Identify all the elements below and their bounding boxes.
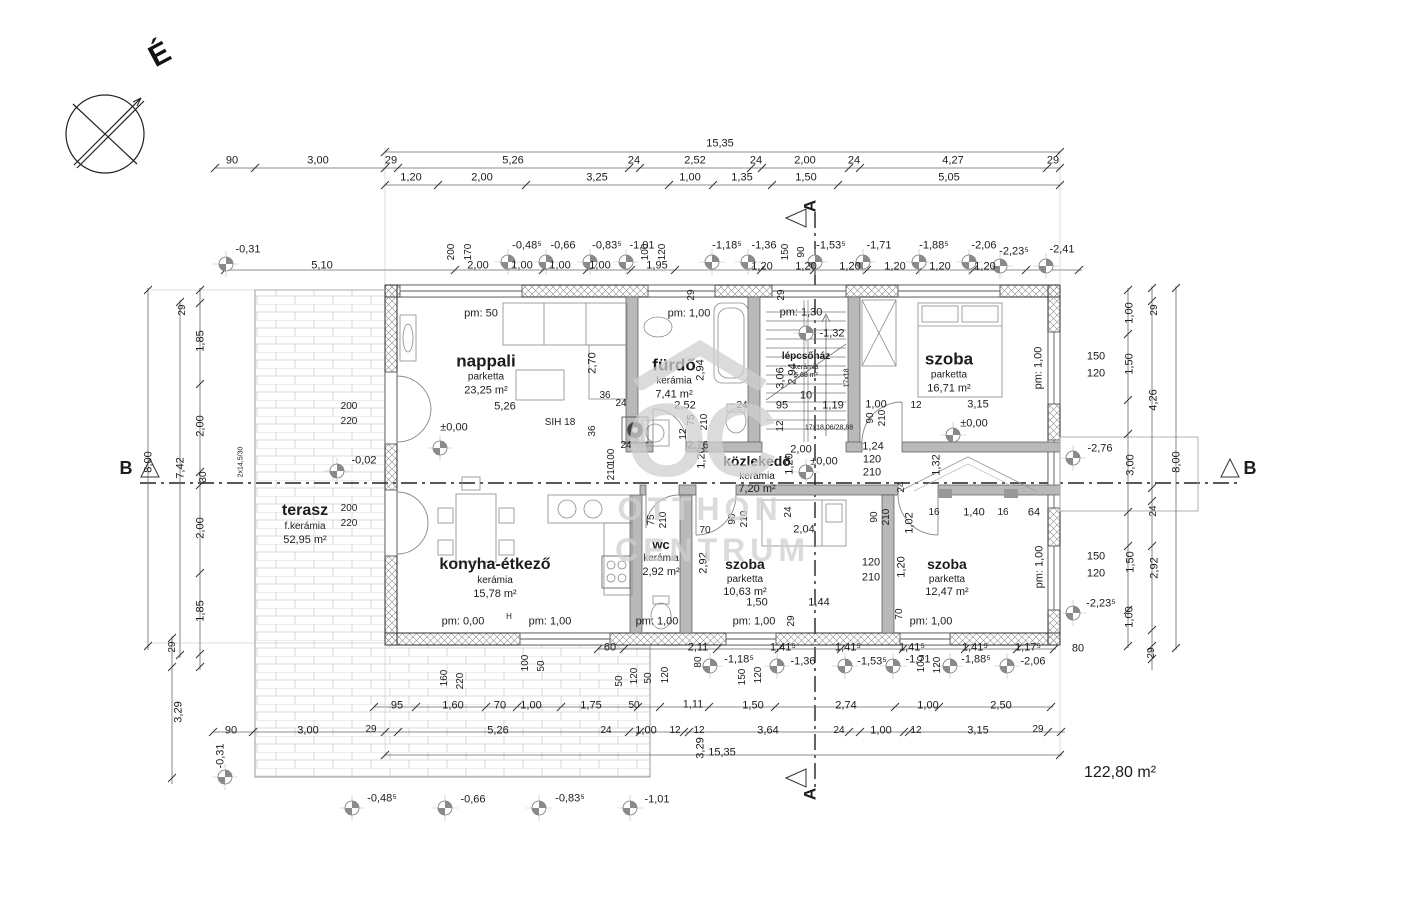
- room-area: 15,78 m²: [439, 587, 550, 601]
- dim-label: 120: [630, 668, 640, 685]
- dim-label: B: [1244, 459, 1257, 477]
- dim-label: 64: [1028, 508, 1040, 519]
- dim-label: 24: [784, 506, 794, 517]
- dim-label: 12: [910, 401, 921, 411]
- room-finish: f.kerámia: [282, 521, 328, 534]
- dim-label: 5,26: [487, 726, 508, 737]
- dim-label: pm: 0,00: [442, 617, 485, 628]
- dim-label: 2,50: [990, 701, 1011, 712]
- dim-label: -2,06: [1020, 657, 1045, 668]
- dim-label: 30: [199, 471, 209, 482]
- dim-label: 24: [897, 481, 907, 492]
- dim-label: 1,00: [870, 726, 891, 737]
- dim-label: -1,36: [790, 657, 815, 668]
- dim-label: 120: [754, 667, 764, 684]
- dim-label: 3,25: [586, 173, 607, 184]
- dim-label: -2,23⁵: [999, 247, 1029, 258]
- dim-label: 120: [933, 657, 943, 674]
- dim-label: -0,48⁵: [512, 241, 542, 252]
- dim-label: 50: [628, 701, 639, 711]
- dim-label: 3,29: [174, 701, 185, 722]
- room-label: konyha-étkezőkerámia15,78 m²: [439, 555, 550, 601]
- dim-label: ±0,00: [810, 457, 837, 468]
- dim-label: 24: [848, 156, 860, 167]
- dim-label: 1,50: [795, 173, 816, 184]
- dim-label: 1,85: [196, 600, 207, 621]
- dim-label: 210: [878, 410, 888, 427]
- room-name: terasz: [282, 501, 328, 521]
- dim-label: 4,26: [1149, 389, 1160, 410]
- dim-label: 29: [787, 615, 797, 626]
- dim-label: 3,00: [307, 156, 328, 167]
- dim-label: 95: [391, 701, 403, 712]
- dim-label: 3,00: [1126, 454, 1137, 475]
- room-area: 52,95 m²: [282, 533, 328, 547]
- dim-label: 2,00: [471, 173, 492, 184]
- dim-label: 2,00: [196, 415, 207, 436]
- room-name: lépcsőház: [782, 351, 830, 364]
- dim-label: 2,00: [467, 261, 488, 272]
- dim-label: pm: 1,00: [1035, 546, 1046, 589]
- dim-label: 80: [1072, 644, 1084, 655]
- dim-label: -1,36: [751, 241, 776, 252]
- dim-label: 5,26: [502, 156, 523, 167]
- dim-label: 70: [494, 701, 506, 712]
- dim-label: 15,35: [708, 748, 736, 759]
- dim-label: 29: [1032, 725, 1043, 735]
- dim-label: 24: [628, 156, 640, 167]
- dim-label: 16: [997, 508, 1008, 518]
- dim-label: 1,00: [589, 261, 610, 272]
- dim-label: 36: [588, 425, 598, 436]
- dim-label: 1,17⁵: [1015, 643, 1041, 654]
- dim-label: 1,19: [822, 401, 843, 412]
- dim-label: 50: [644, 672, 654, 683]
- room-area: 5,68 m²: [782, 372, 830, 381]
- dim-label: 80: [694, 656, 704, 667]
- dim-label: 12: [693, 726, 704, 736]
- dim-label: -0,48⁵: [367, 794, 397, 805]
- room-area: 10,63 m²: [723, 586, 766, 600]
- dim-label: SIH 18: [545, 418, 576, 428]
- room-label: szobaparketta16,71 m²: [925, 348, 973, 396]
- dim-label: 15,35: [706, 139, 734, 150]
- dim-label: 5,05: [938, 173, 959, 184]
- dim-label: 90: [797, 246, 807, 257]
- dim-label: -2,41: [1049, 245, 1074, 256]
- dim-label: 24: [1149, 505, 1159, 516]
- dim-label: 1,00: [1125, 606, 1136, 627]
- dim-label: 90: [870, 511, 880, 522]
- dim-label: 24: [833, 726, 844, 736]
- dim-label: 1,20: [884, 262, 905, 273]
- dim-label: 1,20: [897, 556, 908, 577]
- dim-label: 1,02: [905, 512, 916, 533]
- dim-label: -1,71: [866, 241, 891, 252]
- dim-label: -2,76: [1087, 444, 1112, 455]
- dim-label: -1,53⁵: [857, 657, 887, 668]
- dim-label: B: [120, 459, 133, 477]
- dim-label: pm: 1,00: [668, 309, 711, 320]
- dim-label: 3,15: [967, 400, 988, 411]
- dim-label: 1,20: [929, 262, 950, 273]
- room-label: szobaparketta12,47 m²: [925, 556, 968, 600]
- dim-label: 90: [226, 156, 238, 167]
- dim-label: 70: [895, 608, 905, 619]
- dim-label: 2x14,5/30: [238, 447, 245, 478]
- watermark: OC OTTHON CENTRUM: [615, 338, 785, 572]
- dim-label: 29: [168, 641, 178, 652]
- dim-label: 1,41⁵: [770, 643, 796, 654]
- dim-label: 1,40: [963, 508, 984, 519]
- room-label: lépcsőházkerámia5,68 m²: [782, 351, 830, 381]
- dim-label: -0,66: [550, 241, 575, 252]
- dim-label: -1,01: [644, 795, 669, 806]
- dim-label: 2,00: [196, 517, 207, 538]
- dim-label: pm: 1,30: [780, 308, 823, 319]
- dim-label: -0,66: [460, 795, 485, 806]
- dim-label: 10: [800, 391, 812, 402]
- room-area: 23,25 m²: [456, 384, 516, 398]
- watermark-line2: CENTRUM: [615, 530, 785, 572]
- dim-label: 1,20: [751, 262, 772, 273]
- dim-label: 1,00: [679, 173, 700, 184]
- dim-label: 3,29: [696, 737, 707, 758]
- dim-label: 50: [615, 675, 625, 686]
- watermark-logo: OC: [615, 395, 785, 489]
- dim-label: -0,31: [216, 743, 227, 768]
- dim-label: 36: [599, 391, 610, 401]
- dim-label: 160: [440, 670, 450, 687]
- dim-label: 17x18: [844, 368, 851, 387]
- dim-label: -1,88⁵: [919, 241, 949, 252]
- dim-label: -1,18⁵: [712, 241, 742, 252]
- room-label: nappaliparketta23,25 m²: [456, 350, 516, 398]
- dim-label: 120: [862, 558, 880, 569]
- dim-label: 1,44: [808, 598, 829, 609]
- room-finish: kerámia: [782, 364, 830, 373]
- dim-label: 3,00: [297, 726, 318, 737]
- dim-label: 1,24: [862, 442, 883, 453]
- dim-label: ±0,00: [440, 423, 467, 434]
- dim-label: 29: [687, 289, 697, 300]
- dim-label: 150: [738, 669, 748, 686]
- dim-label: -0,83⁵: [555, 794, 585, 805]
- dim-label: pm: 1,00: [636, 617, 679, 628]
- dim-label: 150: [1087, 352, 1105, 363]
- dim-label: 29: [365, 725, 376, 735]
- dim-label: H: [506, 613, 512, 621]
- dim-label: 8,00: [144, 451, 155, 472]
- dim-label: 29: [1147, 647, 1157, 658]
- dim-label: 1,41⁵: [899, 643, 925, 654]
- dim-label: 1,20: [795, 262, 816, 273]
- dim-label: 100: [917, 656, 927, 673]
- room-name: szoba: [925, 348, 973, 369]
- dim-label: pm: 1,00: [1034, 347, 1045, 390]
- room-finish: parketta: [925, 370, 973, 383]
- dim-label: 1,50: [1125, 353, 1136, 374]
- room-label: teraszf.kerámia52,95 m²: [282, 501, 328, 547]
- dim-label: pm: 1,00: [529, 617, 572, 628]
- dim-label: 1,50: [1126, 551, 1137, 572]
- dim-label: 1,00: [549, 261, 570, 272]
- dim-label: 2,00: [794, 156, 815, 167]
- dim-label: 24: [600, 726, 611, 736]
- dim-label: 8,00: [1172, 451, 1183, 472]
- room-finish: parketta: [925, 574, 968, 587]
- dim-label: 120: [658, 244, 668, 261]
- dim-label: 2,52: [684, 156, 705, 167]
- dim-label: 200: [341, 504, 358, 514]
- dim-label: 5,26: [494, 402, 515, 413]
- dim-label: 29: [178, 304, 188, 315]
- dim-label: 3,64: [757, 726, 778, 737]
- dim-label: 220: [341, 417, 358, 427]
- dim-label: 1,20: [400, 173, 421, 184]
- dim-label: 200: [341, 402, 358, 412]
- dim-label: A: [802, 788, 819, 800]
- dim-label: -0,83⁵: [592, 241, 622, 252]
- dim-label: 1,20: [974, 262, 995, 273]
- room-finish: kerámia: [439, 575, 550, 588]
- dim-label: 100: [641, 244, 651, 261]
- watermark-line1: OTTHON: [615, 489, 785, 531]
- dim-label: -1,32: [819, 329, 844, 340]
- dim-label: 150: [781, 244, 791, 261]
- dim-label: 170: [464, 244, 474, 261]
- dim-label: 1,00: [1125, 302, 1136, 323]
- dim-label: 60: [604, 643, 616, 654]
- room-finish: parketta: [456, 372, 516, 385]
- dim-label: -1,88⁵: [961, 655, 991, 666]
- dim-label: 12: [910, 726, 921, 736]
- dim-label: 120: [661, 667, 671, 684]
- dim-label: 2,74: [835, 701, 856, 712]
- dim-label: 120: [863, 455, 881, 466]
- dim-label: 100: [521, 655, 531, 672]
- floor-plan-canvas: 15,35903,00295,26242,52242,00244,27291,2…: [0, 0, 1407, 919]
- room-area: 12,47 m²: [925, 586, 968, 600]
- dim-label: A: [802, 200, 819, 212]
- dim-label: 3,15: [967, 726, 988, 737]
- dim-label: 29: [777, 289, 787, 300]
- dim-label: 24: [750, 156, 762, 167]
- dim-label: -0,31: [235, 245, 260, 256]
- dim-label: 1,85: [196, 330, 207, 351]
- dim-label: 1,00: [520, 701, 541, 712]
- dim-label: 2,00: [790, 445, 811, 456]
- dim-label: 50: [537, 660, 547, 671]
- dim-label: 1,75: [580, 701, 601, 712]
- dim-label: 1,60: [442, 701, 463, 712]
- dim-label: ±0,00: [960, 419, 987, 430]
- dim-label: 210: [862, 573, 880, 584]
- dim-label: pm: 1,00: [910, 617, 953, 628]
- dim-label: 210: [863, 468, 881, 479]
- room-name: nappali: [456, 350, 516, 371]
- dim-label: 220: [341, 519, 358, 529]
- dim-label: 2,92: [1150, 557, 1161, 578]
- room-finish: parketta: [723, 574, 766, 587]
- dim-label: -2,06: [971, 241, 996, 252]
- room-area: 16,71 m²: [925, 382, 973, 396]
- dim-label: 5,10: [311, 261, 332, 272]
- dim-label: 4,27: [942, 156, 963, 167]
- dim-label: 90: [866, 412, 876, 423]
- dim-label: 1,32: [932, 454, 943, 475]
- dim-label: 1,00: [635, 726, 656, 737]
- dim-label: 1,35: [731, 173, 752, 184]
- dim-label: 29: [1150, 304, 1160, 315]
- dim-label: -2,23⁵: [1086, 599, 1116, 610]
- dim-label: 1,41⁵: [962, 643, 988, 654]
- dim-label: 12: [669, 726, 680, 736]
- dim-label: -1,53⁵: [816, 241, 846, 252]
- dim-label: 17x18,06/28,88: [805, 425, 853, 432]
- dim-label: 1,95: [646, 261, 667, 272]
- dim-label: 90: [225, 726, 237, 737]
- dim-label: pm: 50: [464, 309, 498, 320]
- dim-label: 220: [456, 673, 466, 690]
- dim-label: 7,42: [176, 457, 187, 478]
- dim-label: 120: [1087, 369, 1105, 380]
- dim-label: 1,20: [839, 262, 860, 273]
- dim-label: 1,00: [917, 701, 938, 712]
- dim-label: 1,50: [742, 701, 763, 712]
- dim-label: 2,11: [688, 643, 709, 654]
- dim-label: -0,02: [351, 456, 376, 467]
- dim-label: 29: [385, 156, 397, 167]
- dim-label: 120: [1087, 569, 1105, 580]
- room-name: szoba: [925, 556, 968, 574]
- dim-label: 2,70: [588, 352, 599, 373]
- dim-label: 1,00: [511, 261, 532, 272]
- dim-label: 150: [1087, 552, 1105, 563]
- dim-label: 210: [882, 509, 892, 526]
- dim-label: 29: [1047, 156, 1059, 167]
- total-area-label: 122,80 m²: [1084, 764, 1156, 782]
- room-name: konyha-étkező: [439, 555, 550, 575]
- dim-label: -1,18⁵: [724, 655, 754, 666]
- dim-label: 1,11: [683, 700, 704, 711]
- dim-label: 1,41⁵: [835, 643, 861, 654]
- dim-label: pm: 1,00: [733, 617, 776, 628]
- dim-label: 16: [928, 508, 939, 518]
- dim-label: 200: [447, 244, 457, 261]
